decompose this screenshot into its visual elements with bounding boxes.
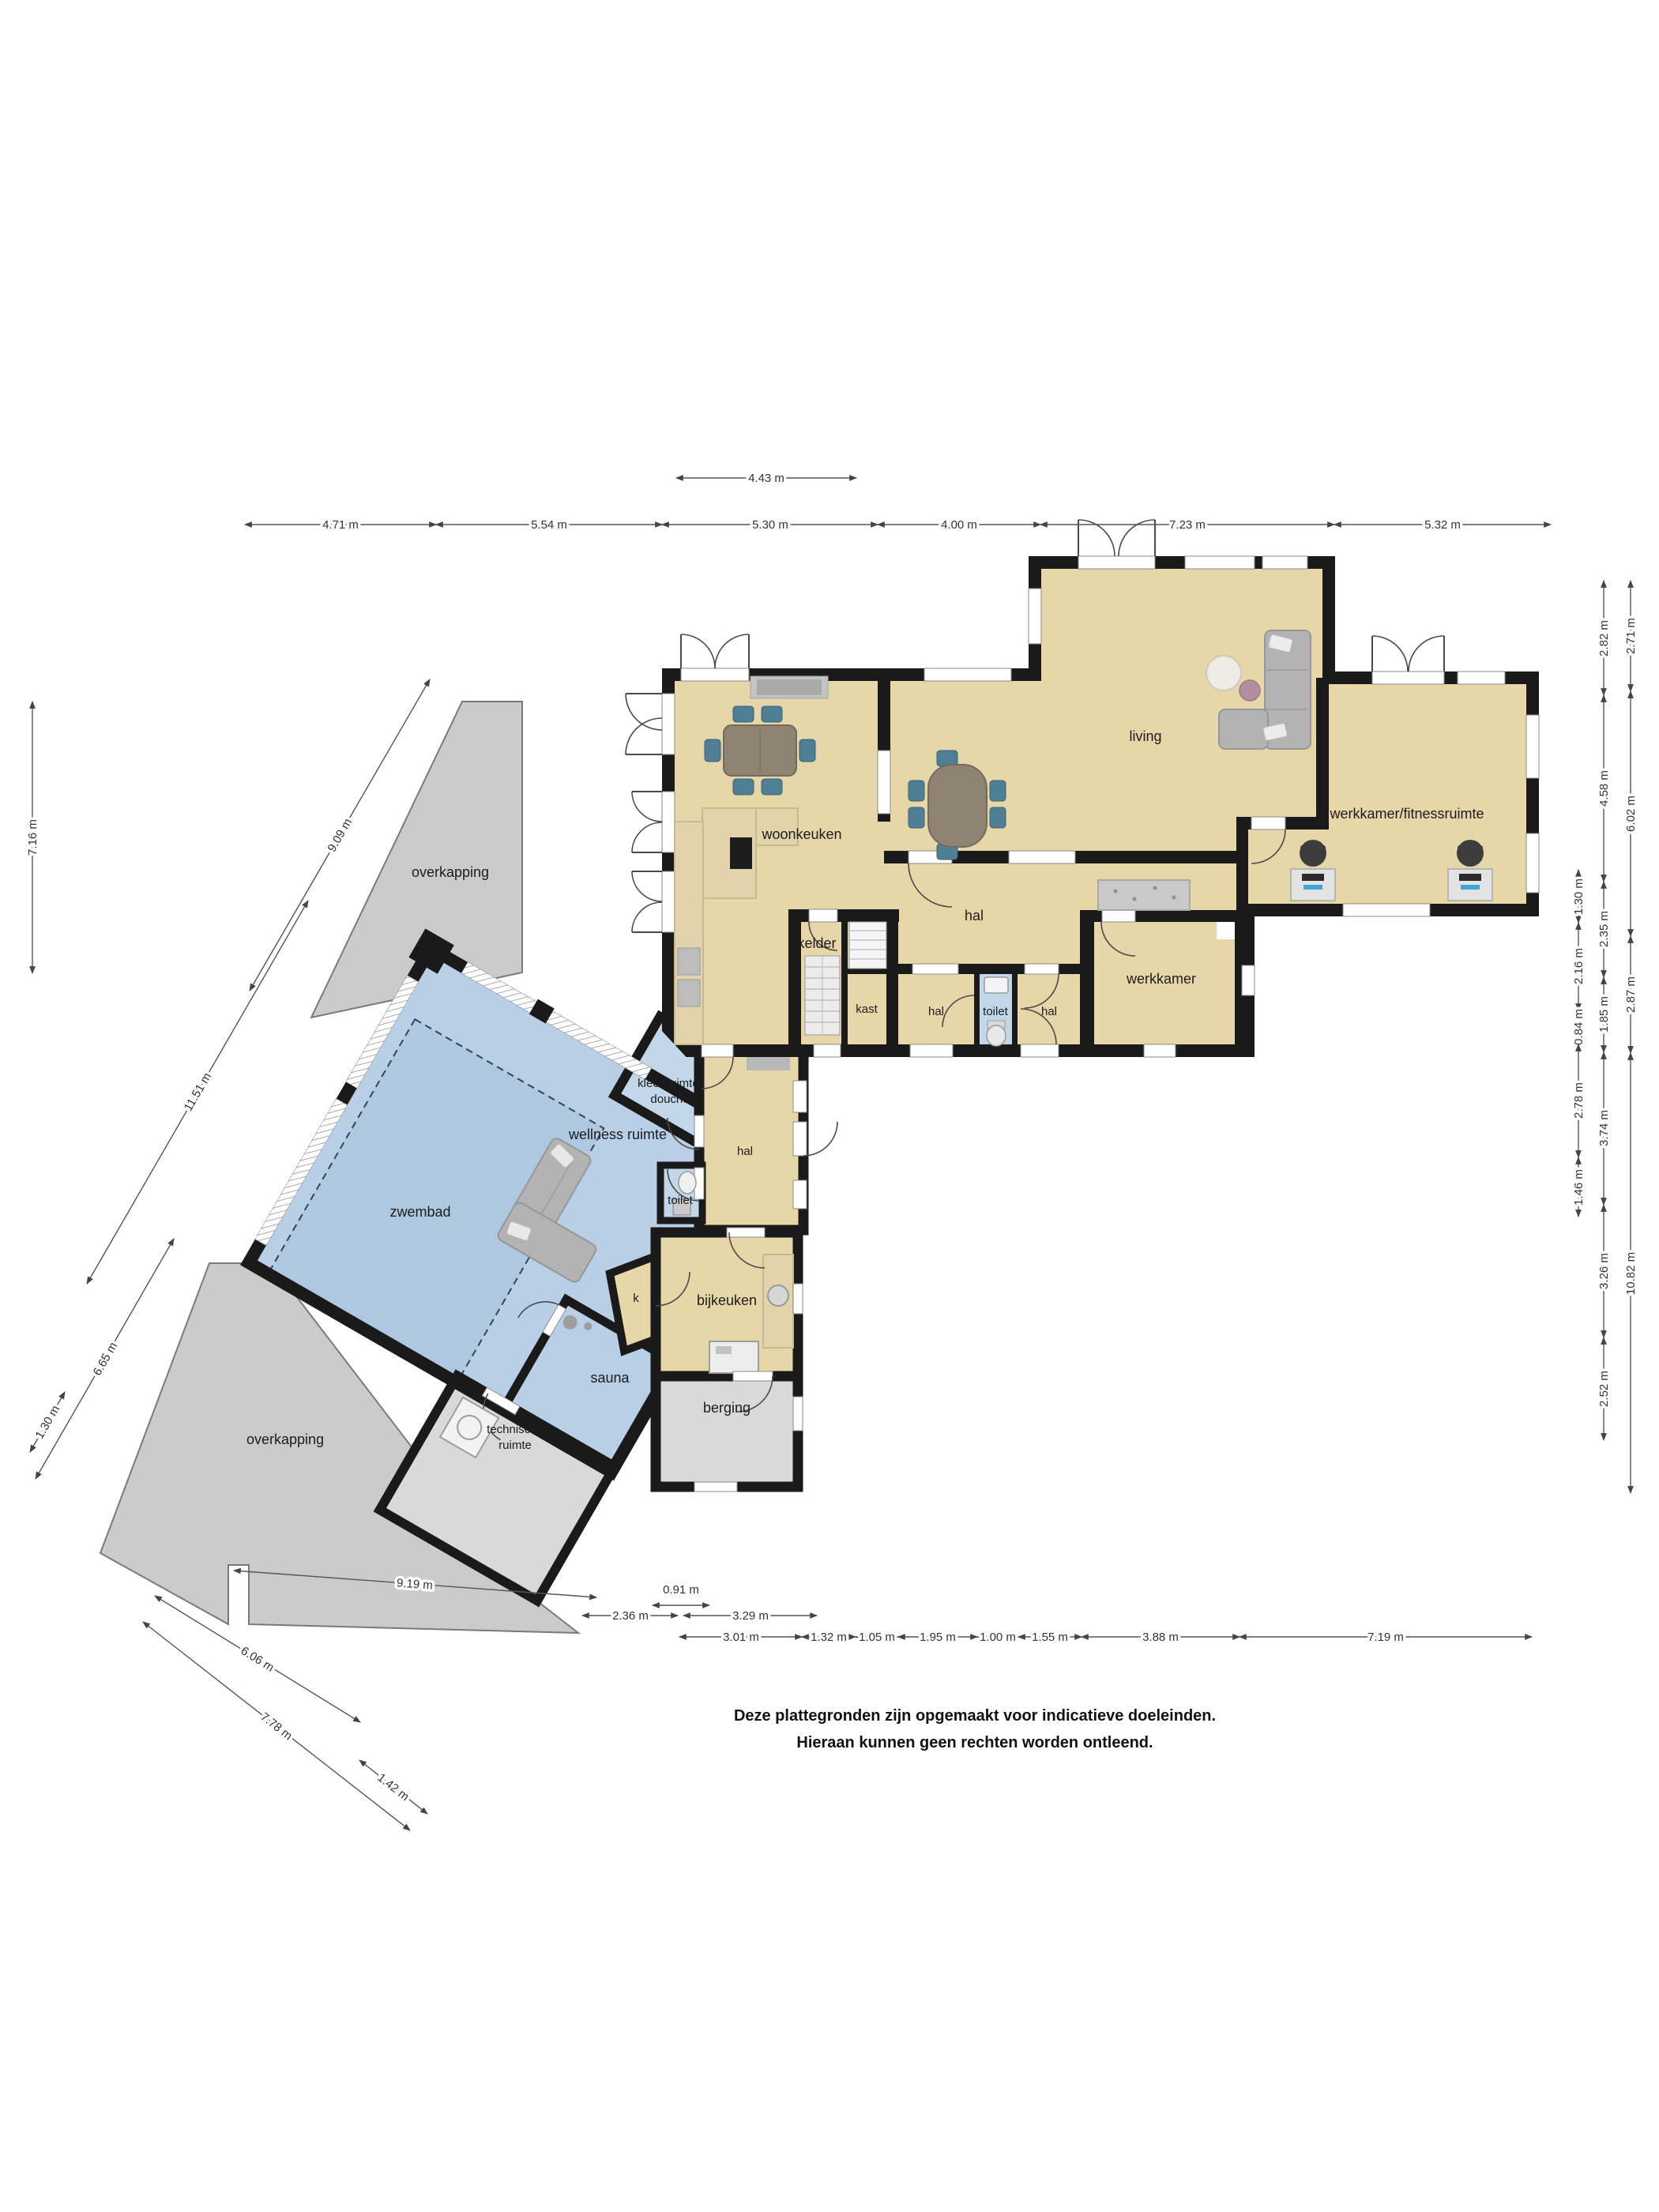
overkapping-top-label: overkapping	[412, 864, 489, 880]
room-hal-wing-floor	[699, 1051, 803, 1230]
room-wellness-label: wellness ruimte	[568, 1127, 667, 1142]
room-berging-label: berging	[703, 1400, 750, 1416]
disclaimer-line-1: Deze plattegronden zijn opgemaakt voor i…	[734, 1707, 1216, 1725]
bijkeuken-door-gap	[727, 1228, 765, 1237]
shaft	[1217, 922, 1235, 939]
berging-door-gap	[733, 1371, 773, 1381]
room-toilet-main-label: toilet	[983, 1005, 1009, 1018]
hal-wing-window	[793, 1081, 807, 1112]
dimension-label: 11.51 m	[182, 1070, 214, 1113]
room-bijkeuken-label: bijkeuken	[697, 1292, 757, 1308]
dimension-label: 2.52 m	[1597, 1371, 1611, 1407]
dimension-label: 0.91 m	[663, 1583, 699, 1597]
dimension-label: 2.71 m	[1624, 618, 1638, 654]
dimension-label: 7.78 m	[258, 1710, 295, 1744]
dimension-label: 6.06 m	[239, 1644, 276, 1675]
room-k-label: k	[633, 1292, 639, 1305]
coffee-table-round	[1206, 656, 1241, 690]
stairs-kelder	[805, 956, 840, 1035]
room-sauna-label: sauna	[590, 1370, 630, 1386]
dimension-label: 1.55 m	[1032, 1631, 1068, 1644]
dimension-label: 3.88 m	[1142, 1631, 1179, 1644]
room-kleedruimte-label-1: kleedruimte/	[638, 1077, 703, 1090]
overkapping-bottom-label: overkapping	[246, 1431, 324, 1447]
dimension-label: 1.46 m	[1572, 1169, 1586, 1206]
dimension-label: 1.85 m	[1597, 996, 1611, 1033]
dimension-label: 1.30 m	[1572, 878, 1586, 915]
bijkeuken-window	[793, 1284, 803, 1314]
floorplan-canvas: living woonkeuken werkkamer/fitnessruimt…	[0, 0, 1659, 2212]
berging-south-door	[694, 1482, 737, 1492]
dimension-label: 5.54 m	[531, 518, 567, 532]
dimension-label: 7.16 m	[26, 819, 39, 856]
dimension-label: 1.95 m	[920, 1631, 956, 1644]
room-kelder-label: kelder	[797, 935, 836, 951]
kitchen-counter-left	[675, 822, 703, 1044]
dimension-label: 4.43 m	[748, 472, 784, 485]
room-werkkamer-fitness-label: werkkamer/fitnessruimte	[1329, 806, 1484, 822]
room-werkkamer-label: werkkamer	[1126, 971, 1196, 987]
dimension-label: 1.42 m	[374, 1771, 412, 1804]
room-hal-main-label: hal	[965, 908, 984, 924]
dimension-label: 3.01 m	[723, 1631, 759, 1644]
room-living-label: living	[1129, 728, 1161, 744]
dimension-label: 5.30 m	[752, 518, 788, 532]
dimension-label: 7.23 m	[1169, 518, 1206, 532]
dimension-label: 1.05 m	[859, 1631, 895, 1644]
bijkeuken-counter	[763, 1255, 793, 1348]
dimension-label: 1.30 m	[33, 1403, 63, 1441]
dimension-label: 2.87 m	[1624, 976, 1638, 1013]
side-table-round	[1240, 680, 1260, 701]
disclaimer-line-2: Hieraan kunnen geen rechten worden ontle…	[796, 1734, 1153, 1751]
dimension-label: 9.09 m	[325, 816, 355, 854]
main-house	[626, 520, 1539, 1089]
dimension-label: 3.26 m	[1597, 1253, 1611, 1289]
floorplan-page: living woonkeuken werkkamer/fitnessruimt…	[0, 0, 1659, 2212]
dimension-label: 3.29 m	[732, 1609, 769, 1623]
berging-window	[793, 1397, 803, 1431]
dimension-label: 2.35 m	[1597, 911, 1611, 947]
room-toilet-wing-label: toilet	[668, 1194, 694, 1207]
dimension-label: 10.82 m	[1624, 1252, 1638, 1295]
dimension-label: 4.00 m	[941, 518, 977, 532]
room-hal-band-right-label: hal	[1041, 1005, 1057, 1018]
dimension-label: 2.36 m	[612, 1609, 649, 1623]
dimension-label: 6.65 m	[91, 1340, 121, 1378]
dimension-label: 2.78 m	[1572, 1082, 1586, 1119]
kitchen-hood	[750, 676, 828, 698]
dimension-label: 2.16 m	[1572, 948, 1586, 984]
bijkeuken-washer	[709, 1341, 758, 1373]
door-gap	[694, 1115, 704, 1147]
room-zwembad-label: zwembad	[389, 1204, 450, 1220]
stairs-main	[849, 922, 886, 969]
dimension-label: 4.58 m	[1597, 770, 1611, 807]
room-berging-floor	[656, 1376, 798, 1487]
room-technische-label-2: ruimte	[498, 1439, 532, 1452]
dimension-label: 6.02 m	[1624, 796, 1638, 832]
dimension-label: 1.00 m	[980, 1631, 1016, 1644]
dimension-label: 2.82 m	[1597, 620, 1611, 656]
room-hal-wing-label: hal	[737, 1145, 753, 1158]
dimension-label: 0.84 m	[1572, 1009, 1586, 1045]
hal-wing-window	[793, 1180, 807, 1209]
room-technische-label-1: technische	[487, 1423, 544, 1436]
room-kleedruimte-label-2: douche	[650, 1093, 689, 1106]
dimension-label: 5.32 m	[1424, 518, 1461, 532]
room-hal-band-left-label: hal	[928, 1005, 944, 1018]
room-woonkeuken-label: woonkeuken	[761, 826, 841, 842]
room-kast-label: kast	[856, 1003, 878, 1016]
dimension-label: 7.19 m	[1367, 1631, 1404, 1644]
dimension-label: 4.71 m	[322, 518, 359, 532]
hal-credenza	[1098, 880, 1190, 910]
hal-wing-door-gap	[793, 1122, 807, 1156]
dimension-label: 9.19 m	[396, 1576, 433, 1592]
dimension-label: 1.32 m	[811, 1631, 847, 1644]
dimension-label: 3.74 m	[1597, 1110, 1611, 1146]
